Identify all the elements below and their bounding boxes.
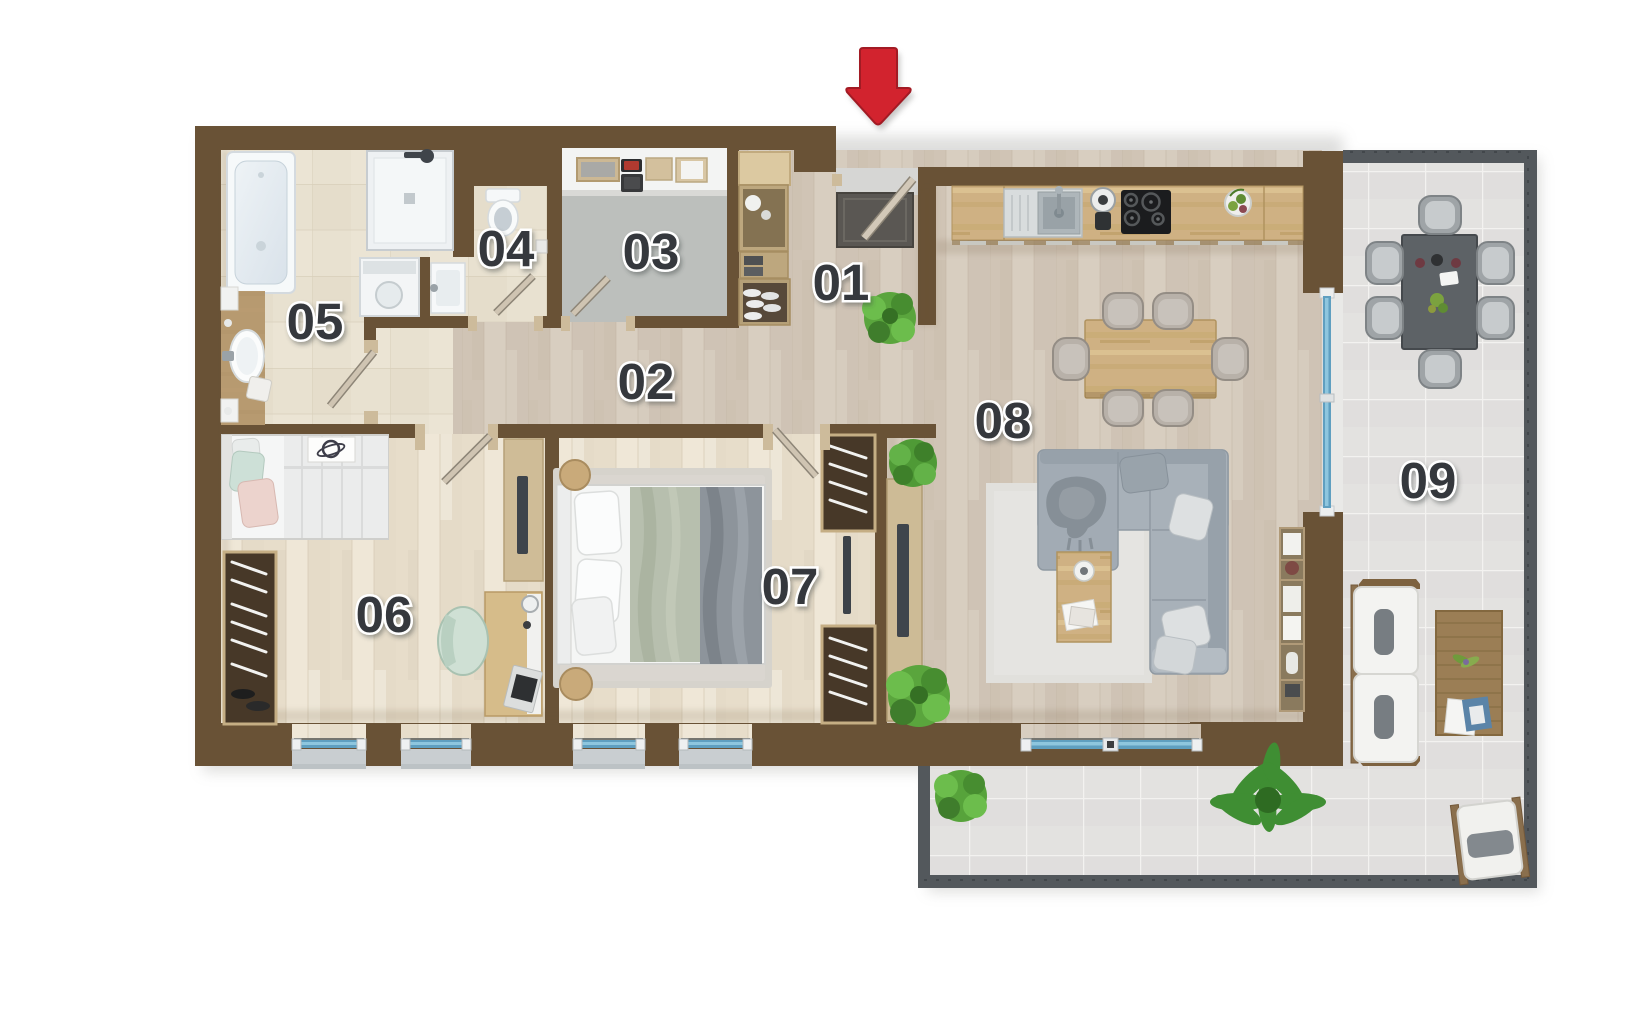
svg-text:04: 04 — [478, 220, 535, 277]
svg-text:05: 05 — [287, 293, 344, 350]
svg-text:01: 01 — [813, 254, 870, 311]
svg-text:08: 08 — [975, 392, 1032, 449]
svg-text:02: 02 — [618, 353, 675, 410]
svg-text:07: 07 — [762, 558, 819, 615]
svg-text:09: 09 — [1400, 452, 1457, 509]
svg-text:03: 03 — [623, 223, 680, 280]
svg-text:06: 06 — [356, 586, 413, 643]
